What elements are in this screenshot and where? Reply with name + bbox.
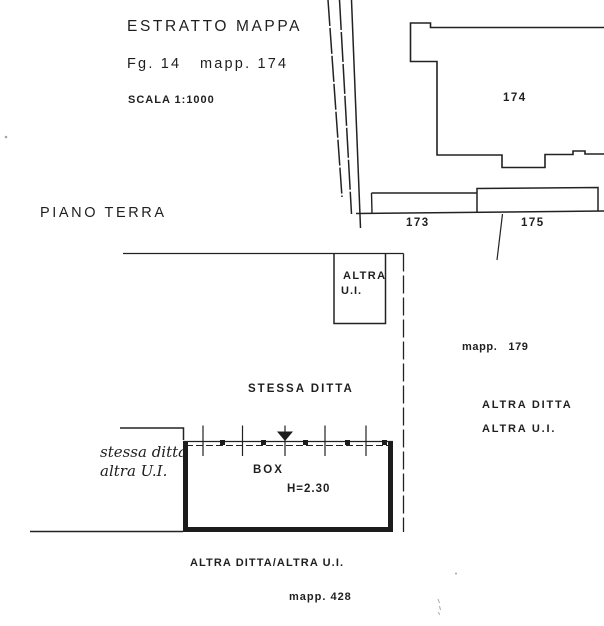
plan-left-step-line [120,428,184,440]
floor-section-label: PIANO TERRA [40,206,167,221]
parcel-boundary-bottom-line [356,211,604,214]
wall-posts [220,440,387,445]
mapp-428-label: mapp. 428 [289,592,352,604]
wall-post-3 [303,440,308,445]
page-title: ESTRATTO MAPPA [127,19,302,35]
bottom-owner-label: ALTRA DITTA/ALTRA U.I. [190,558,344,570]
parcel-175-outline [477,188,598,213]
unit-label: BOX [253,464,284,476]
sheet-reference: Fg. 14 mapp. 174 [127,57,288,72]
handwritten-note-line1: stessa ditta [100,445,187,461]
parcel-leader-line [497,214,503,260]
altra-ditta-label: ALTRA DITTA [482,400,572,412]
speck-squiggle [438,599,441,615]
parcel-174-label: 174 [503,92,527,104]
road-boundary-line-1 [328,0,342,197]
wall-tick-marks [203,426,366,457]
wall-post-4 [345,440,350,445]
box-top-wall [183,442,393,446]
wall-post-2 [261,440,266,445]
parcel-173-outline [372,193,478,213]
parcel-175-label: 175 [521,217,545,229]
altra-ui-label: ALTRA U.I. [482,424,556,436]
road-boundary-lines [328,0,361,228]
neighbor-unit-label-line2: U.I. [341,286,362,298]
mapp-179-label: mapp. 179 [462,342,529,354]
speck-dot-2 [455,573,457,575]
neighbor-unit-label-line1: ALTRA [343,271,386,283]
handwritten-note-line2: altra U.I. [100,464,167,480]
parcel-173-label: 173 [406,217,430,229]
wall-post-5 [382,440,387,445]
entrance-marker-icon [277,432,293,442]
road-boundary-line-3 [352,0,361,228]
wall-post-1 [220,440,225,445]
height-label: H=2.30 [287,483,330,495]
scale-label: SCALA 1:1000 [128,95,215,107]
cadastral-extract-page: ESTRATTO MAPPA Fg. 14 mapp. 174 SCALA 1:… [0,0,604,626]
same-owner-label: STESSA DITTA [248,383,354,395]
speck-dot-1 [5,136,8,139]
